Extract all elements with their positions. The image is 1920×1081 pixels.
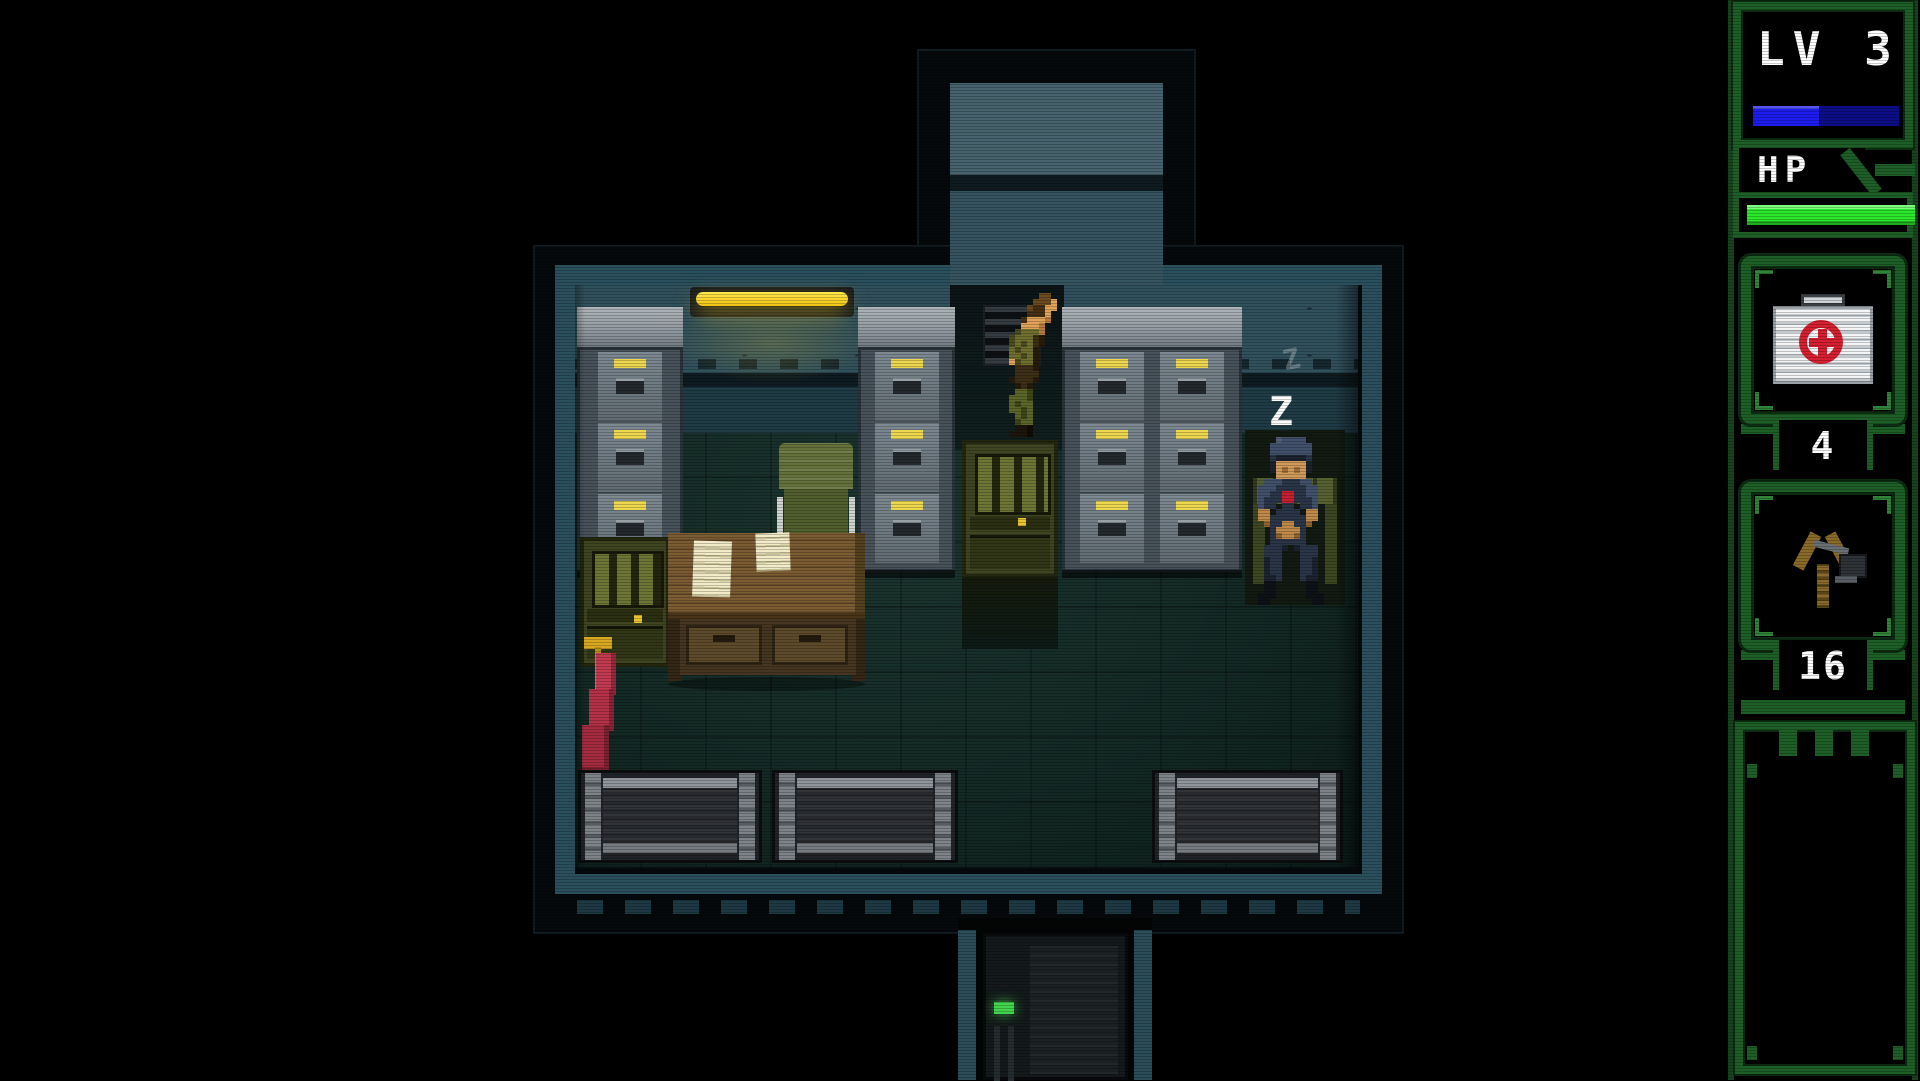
corridor-south [958, 918, 1152, 1080]
room-outer-skirt [577, 900, 1360, 914]
slingshot-icon [1777, 522, 1869, 610]
door-panel [1030, 946, 1118, 1074]
level-label: LV 3 [1757, 22, 1900, 76]
corridor-wall-ledge [950, 175, 1163, 191]
wall-vent [983, 305, 1041, 366]
guard-alcove [1245, 430, 1345, 605]
game-viewport[interactable]: Z Z [0, 0, 1920, 1080]
machine-indicator [634, 615, 642, 623]
hud-frame-strip [1875, 164, 1915, 176]
storage-crate [772, 770, 958, 863]
radio-machine [962, 440, 1058, 578]
guard-chair [1253, 478, 1337, 504]
storage-crate [1152, 770, 1343, 863]
cabinet-top [1062, 307, 1242, 347]
hud-frame-joint [1741, 700, 1905, 714]
xp-bar [1753, 106, 1899, 126]
corridor-north-interior [950, 83, 1163, 247]
machine-indicator [1018, 518, 1026, 526]
desk [668, 533, 865, 619]
hp-bar [1733, 192, 1913, 238]
door [983, 933, 1128, 1080]
machine-shadow [962, 577, 1058, 649]
sleeping-guard [1252, 437, 1258, 443]
xp-bar-fill [1753, 106, 1819, 126]
sleep-indicator: Z [1269, 389, 1293, 435]
office-chair [775, 443, 857, 537]
hud-sidebar: LV 3 HP 4 16 [1727, 0, 1920, 1080]
ceiling-light [690, 287, 854, 317]
storage-crate [578, 770, 762, 863]
door-tracks [994, 1026, 1020, 1081]
papers [692, 540, 732, 597]
item-slot-slingshot [1741, 482, 1905, 650]
hp-label: HP [1757, 150, 1812, 191]
message-panel [1735, 722, 1915, 1074]
desk-front [680, 619, 856, 675]
corridor-wall-upper [950, 83, 1163, 175]
shadow-left [575, 285, 585, 868]
red-flag [582, 637, 618, 771]
cabinet-top [858, 307, 955, 347]
corridor-wall-lower [950, 191, 1163, 247]
medkit-count: 4 [1741, 424, 1905, 468]
corridor-opening [950, 245, 1163, 287]
door-led-indicator [994, 1002, 1014, 1014]
cabinet-top [577, 307, 683, 347]
medkit-icon [1773, 294, 1873, 386]
player-character [1003, 293, 1009, 299]
corridor-north [917, 49, 1196, 249]
shadow-right [1336, 285, 1358, 868]
room-interior: Z Z [575, 285, 1358, 868]
cabinet-drawers [858, 347, 955, 572]
hp-bar-fill [1747, 205, 1915, 225]
item-slot-medkit [1741, 256, 1905, 424]
cabinet-drawers [1062, 347, 1242, 572]
corridor-wall [958, 930, 976, 1080]
papers [755, 532, 790, 571]
light-bulb [696, 292, 848, 306]
slingshot-count: 16 [1741, 644, 1905, 688]
level-panel: LV 3 [1733, 2, 1913, 148]
corridor-wall [1134, 930, 1152, 1080]
room: Z Z [533, 245, 1404, 934]
